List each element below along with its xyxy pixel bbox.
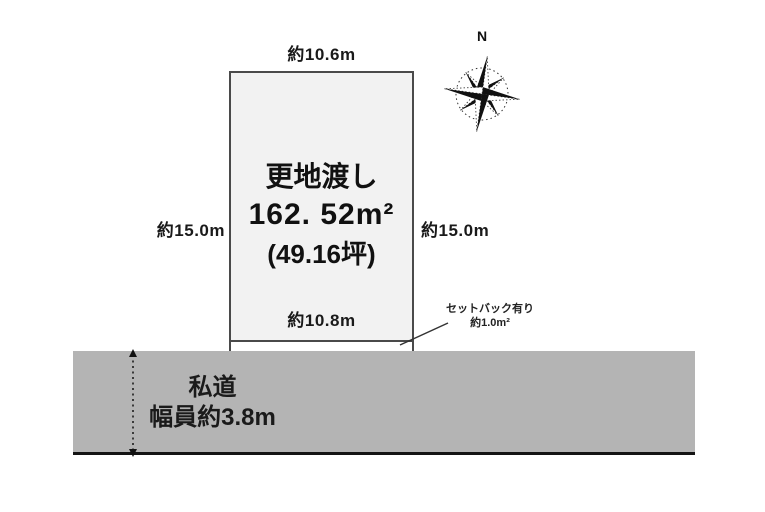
compass-rose-icon: N bbox=[430, 24, 538, 142]
plot-area-sqm: 162. 52m² bbox=[231, 197, 412, 233]
plot-area-tsubo: (49.16坪) bbox=[231, 238, 412, 270]
dimension-bottom-label: 約10.8m bbox=[229, 306, 414, 331]
plot-title: 更地渡し bbox=[231, 161, 412, 193]
road-strip bbox=[73, 351, 695, 455]
dimension-right-label: 約15.0m bbox=[421, 216, 516, 241]
setback-note-line1: セットバック有り bbox=[428, 302, 552, 316]
land-plot-diagram: 約10.6m N 更地渡し 162. 52m² bbox=[0, 0, 765, 512]
plot-outline: 更地渡し 162. 52m² (49.16坪) bbox=[229, 71, 414, 342]
dimension-top-label: 約10.6m bbox=[229, 40, 414, 65]
road-width-arrow-icon bbox=[120, 348, 148, 458]
dimension-left-label: 約15.0m bbox=[130, 216, 225, 241]
north-label: N bbox=[477, 28, 487, 44]
setback-leader-line bbox=[395, 316, 455, 350]
